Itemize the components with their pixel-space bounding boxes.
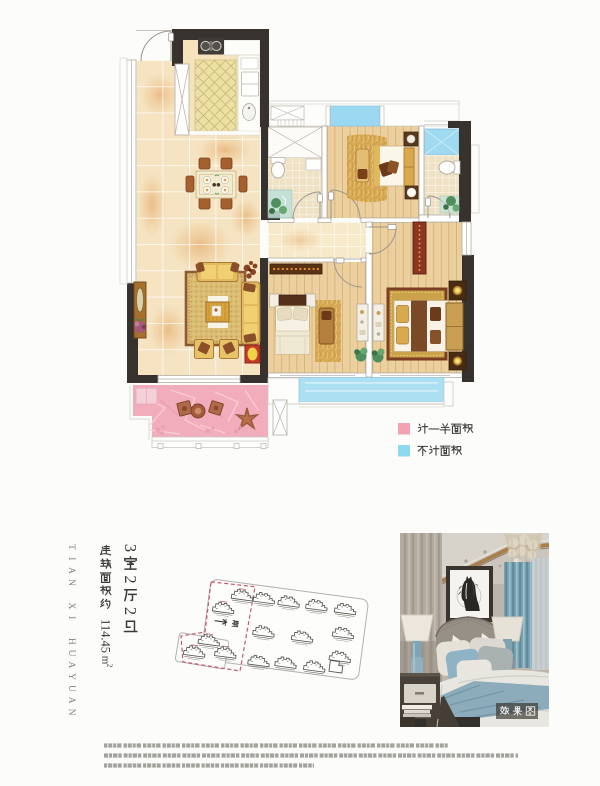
svg-text:X: X — [66, 602, 76, 609]
svg-text:H: H — [66, 638, 76, 645]
svg-text:I: I — [66, 616, 76, 619]
svg-text:Y: Y — [66, 673, 76, 680]
svg-text:2: 2 — [106, 664, 115, 668]
svg-text:A: A — [66, 567, 76, 574]
svg-text:T: T — [66, 544, 76, 550]
svg-text:I: I — [66, 557, 76, 560]
svg-text:2: 2 — [121, 607, 140, 615]
svg-text:U: U — [66, 650, 76, 657]
svg-text:N: N — [66, 709, 76, 716]
svg-text:2: 2 — [121, 575, 140, 583]
svg-text:A: A — [66, 697, 76, 704]
svg-text:U: U — [66, 685, 76, 692]
svg-text:A: A — [66, 661, 76, 668]
svg-text:114.45: 114.45 — [99, 619, 113, 653]
svg-text:3: 3 — [121, 544, 140, 552]
svg-text:N: N — [66, 579, 76, 586]
